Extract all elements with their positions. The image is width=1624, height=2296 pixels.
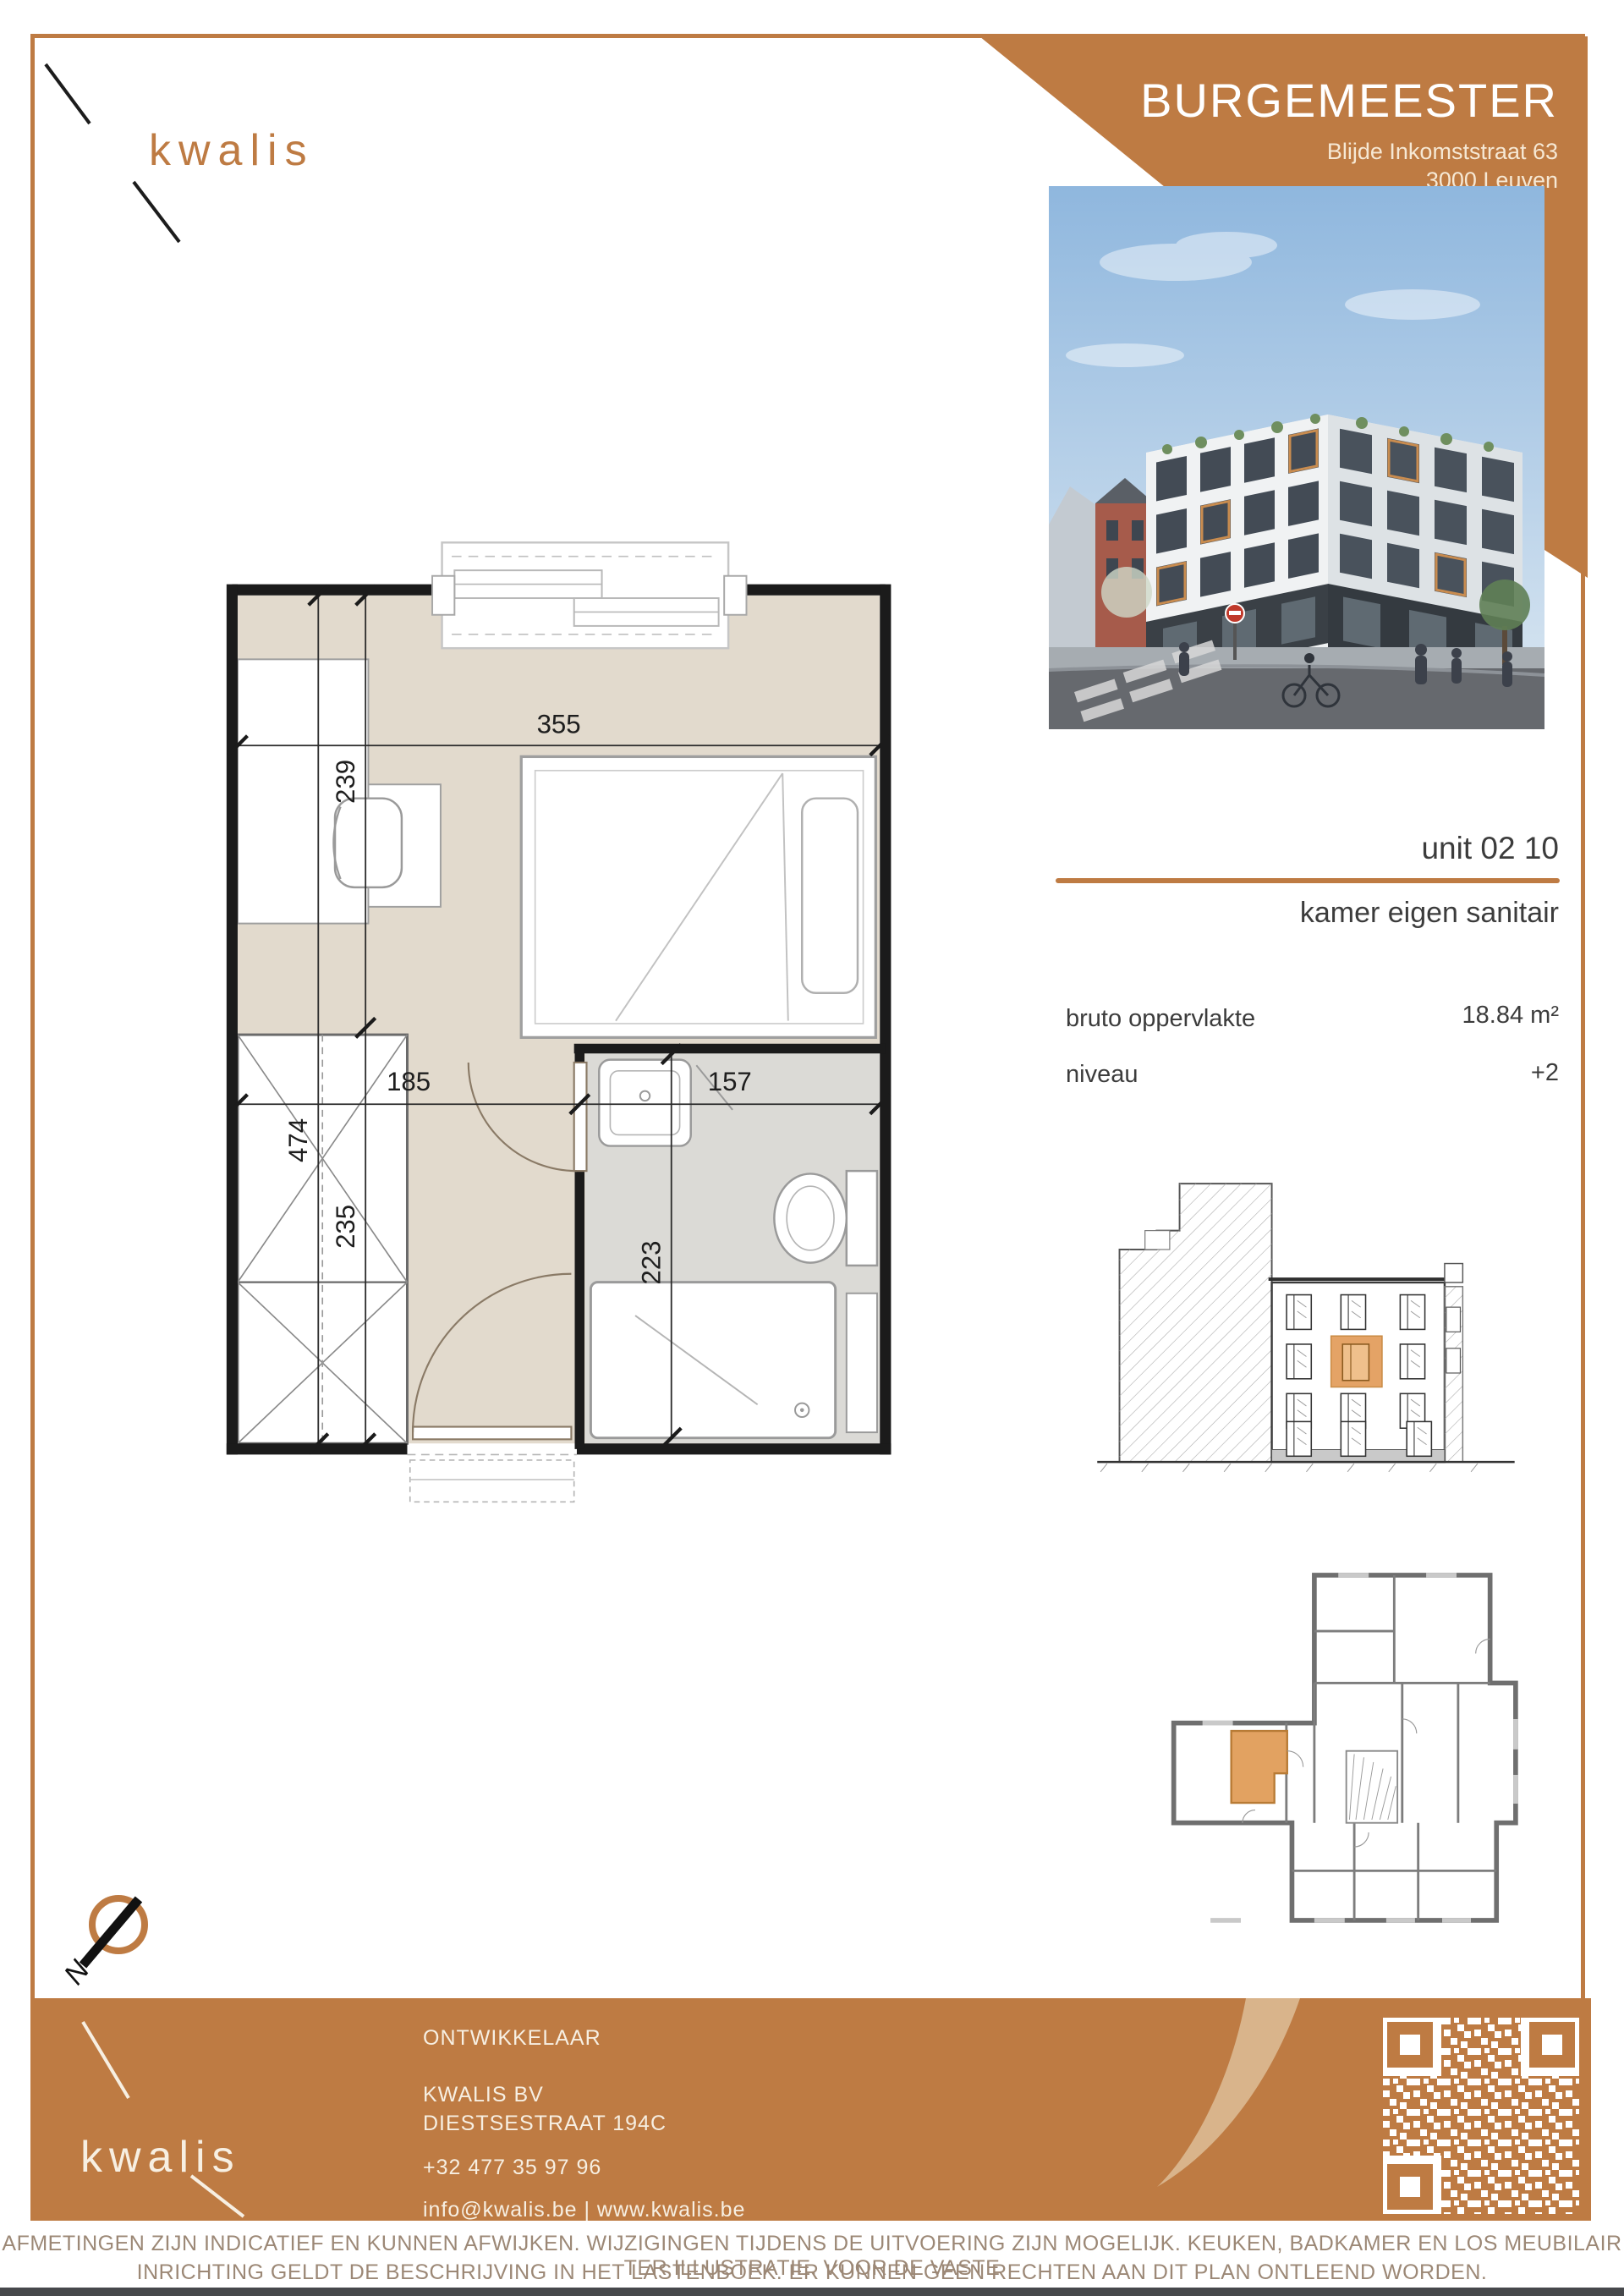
dim-bath-width: 157 — [708, 1067, 752, 1096]
blossom-tree — [1101, 567, 1152, 618]
bottom-edge-strip — [0, 2288, 1624, 2296]
floorplan-sheet: kwalis BURGEMEESTER Blijde Inkomststraat… — [0, 0, 1624, 2296]
floor-plan: 355 185 157 474 239 235 223 — [173, 520, 918, 1519]
compass-icon: N — [51, 1878, 178, 2005]
level-plan-diagram — [1155, 1552, 1586, 1942]
street — [1049, 668, 1544, 729]
footer-role-label: ONTWIKKELAAR — [423, 2026, 601, 2051]
building-photo — [1049, 186, 1544, 729]
level-value: +2 — [1221, 1059, 1559, 1087]
elevation-diagram — [1074, 1138, 1535, 1485]
bed — [521, 756, 875, 1037]
neighbor-houses — [1049, 478, 1155, 660]
wardrobe — [238, 1035, 408, 1443]
brand-swoosh — [1157, 1998, 1300, 2187]
footer-street: DIESTSESTRAAT 194C — [423, 2112, 667, 2136]
qr-finder-top-left — [1383, 2018, 1437, 2072]
stairs — [1347, 1751, 1397, 1823]
area-value: 18.84 m² — [1221, 1002, 1559, 1030]
dim-depth-total: 474 — [283, 1118, 313, 1162]
window — [432, 542, 746, 648]
dim-bath-depth: 223 — [637, 1241, 667, 1285]
unit-type: kamer eigen sanitair — [1051, 897, 1559, 930]
shower — [590, 1283, 877, 1438]
dim-depth-upper: 239 — [331, 760, 360, 804]
entrance-threshold — [407, 1454, 577, 1502]
disclaimer-line-2: INRICHTING GELDT DE BESCHRIJVING IN HET … — [0, 2260, 1624, 2285]
qr-finder-top-right — [1525, 2018, 1579, 2072]
unit-number: unit 02 10 — [1136, 831, 1559, 866]
toilet — [774, 1171, 877, 1266]
pillow — [802, 799, 858, 993]
level-outline — [1174, 1575, 1516, 1920]
dim-depth-lower: 235 — [331, 1205, 360, 1249]
accent-rule — [1056, 878, 1560, 883]
footer-contact-line: info@kwalis.be | www.kwalis.be — [423, 2198, 745, 2222]
footer-graphics — [34, 1998, 1591, 2221]
project-title: BURGEMEESTER — [915, 73, 1558, 128]
brand-wordmark: kwalis — [149, 125, 315, 176]
level-label: niveau — [1066, 1061, 1138, 1089]
dim-width: 355 — [537, 709, 581, 739]
footer-brand-wordmark: kwalis — [80, 2132, 241, 2183]
footer-company: KWALIS BV — [423, 2083, 544, 2107]
address-line-1: Blijde Inkomststraat 63 — [1051, 137, 1558, 166]
footer-phone: +32 477 35 97 96 — [423, 2156, 601, 2180]
dim-room-width: 185 — [387, 1067, 431, 1096]
qr-code — [1383, 2018, 1579, 2214]
qr-finder-bottom-left — [1383, 2160, 1437, 2214]
